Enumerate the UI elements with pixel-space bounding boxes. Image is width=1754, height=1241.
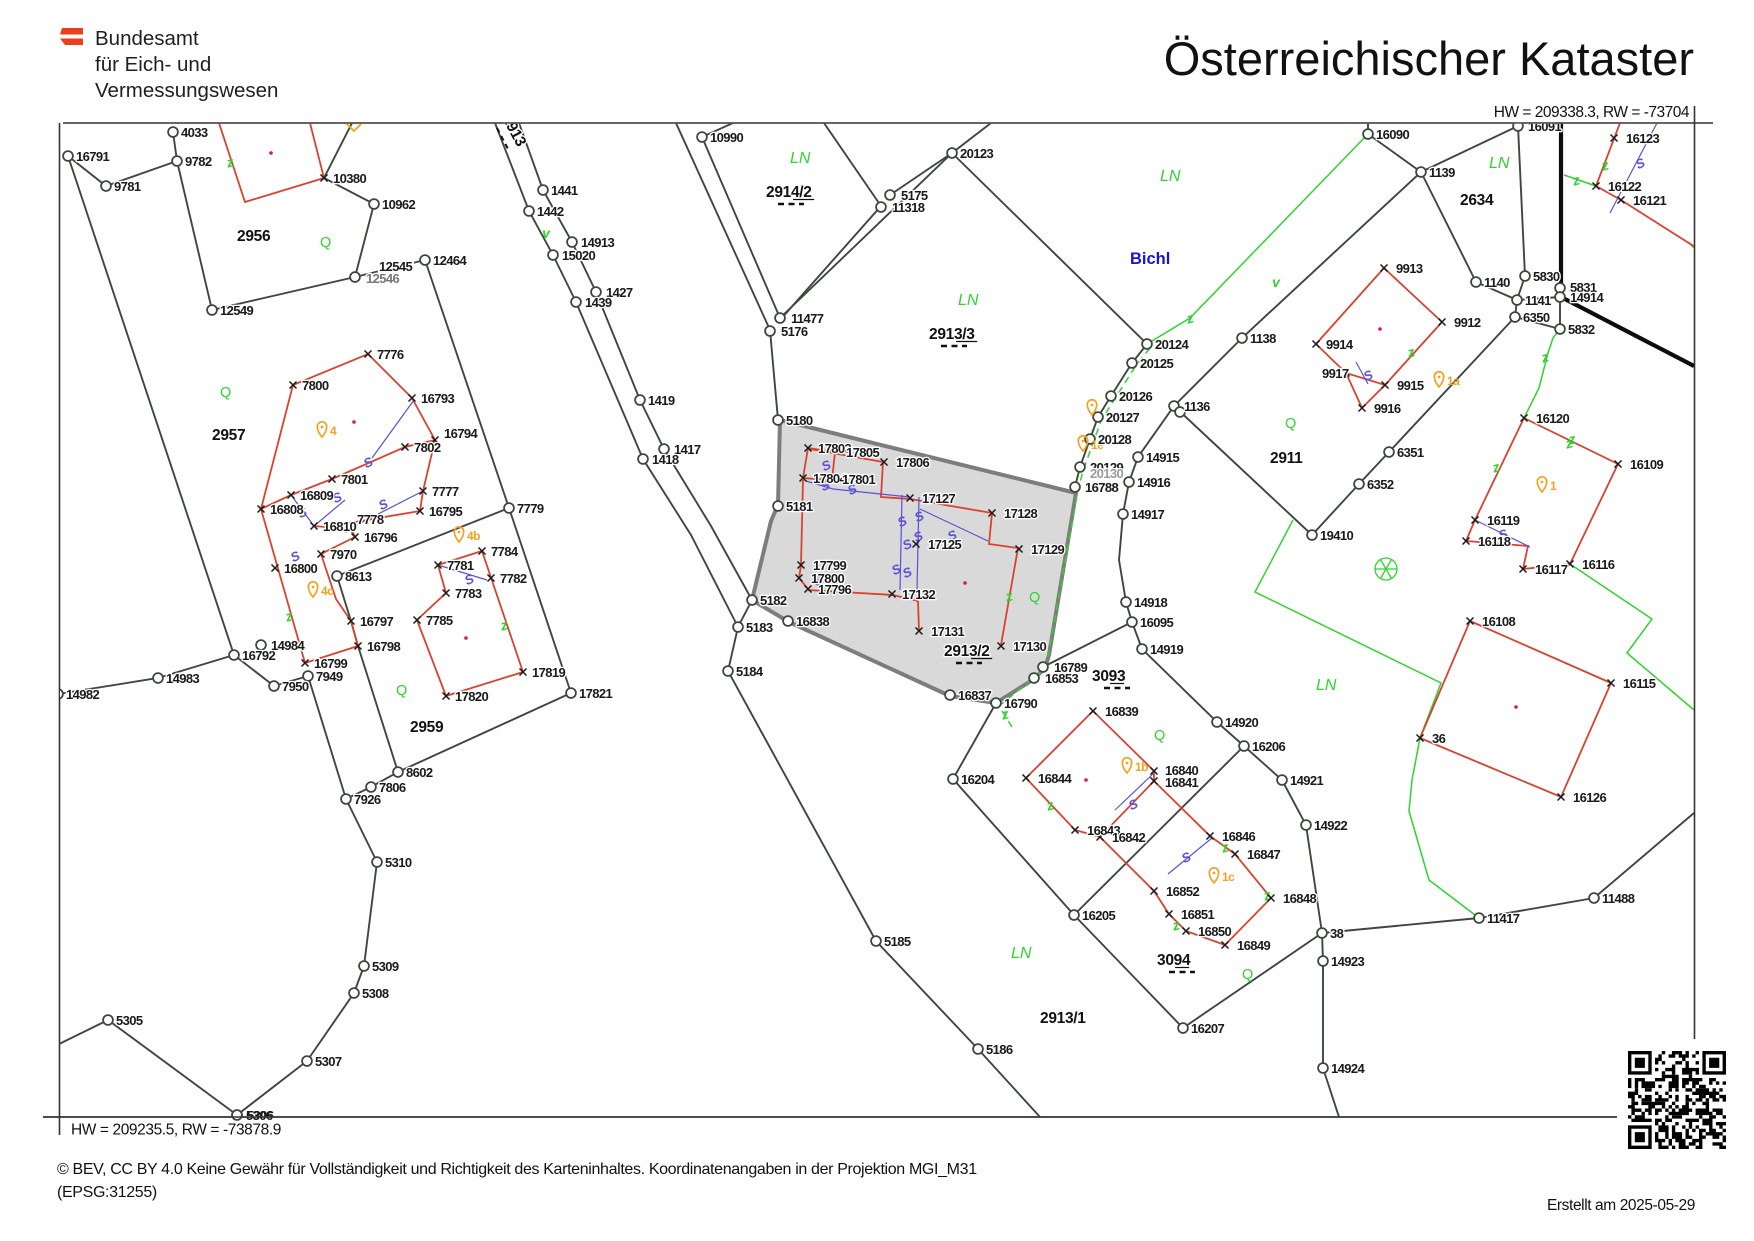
svg-text:5305: 5305 [116,1013,143,1028]
svg-text:20127: 20127 [1106,410,1140,425]
svg-text:2913/3: 2913/3 [929,326,975,343]
svg-text:1419: 1419 [648,393,675,408]
svg-text:1141: 1141 [1525,293,1551,308]
svg-text:3093: 3093 [1092,668,1126,685]
svg-text:11417: 11417 [1487,911,1520,926]
svg-text:2634: 2634 [1460,192,1494,209]
svg-text:17127: 17127 [922,491,956,506]
svg-text:2959: 2959 [410,719,444,736]
svg-text:1c: 1c [1222,870,1235,884]
svg-text:16844: 16844 [1038,771,1073,786]
svg-text:5309: 5309 [372,959,399,974]
svg-text:5185: 5185 [884,934,911,949]
svg-text:17131: 17131 [931,624,965,639]
svg-text:1139: 1139 [1429,165,1455,180]
svg-text:16849: 16849 [1237,938,1271,953]
svg-text:6352: 6352 [1367,477,1394,492]
svg-text:16095: 16095 [1140,615,1174,630]
svg-text:1441: 1441 [551,183,578,198]
svg-text:16796: 16796 [364,530,398,545]
svg-text:14918: 14918 [1134,595,1168,610]
svg-text:5184: 5184 [736,664,764,679]
svg-text:Q: Q [320,235,331,251]
svg-text:17125: 17125 [928,537,962,552]
svg-text:16795: 16795 [429,504,463,519]
svg-text:17805: 17805 [846,445,880,460]
svg-text:11488: 11488 [1602,891,1635,906]
svg-text:14917: 14917 [1131,507,1165,522]
svg-text:7776: 7776 [377,347,404,362]
svg-text:10962: 10962 [382,197,416,212]
svg-text:5176: 5176 [781,324,808,339]
svg-text:Österreichischer Kataster: Österreichischer Kataster [1164,32,1694,85]
svg-text:16798: 16798 [367,639,401,654]
svg-text:9917: 9917 [1322,366,1349,381]
svg-text:1136: 1136 [1184,399,1210,414]
svg-text:2957: 2957 [212,427,245,444]
svg-text:16799: 16799 [314,656,348,671]
svg-text:16851: 16851 [1181,907,1215,922]
svg-text:1442: 1442 [537,204,564,219]
svg-text:7801: 7801 [341,472,368,487]
svg-text:16116: 16116 [1582,557,1615,572]
svg-text:7777: 7777 [432,484,459,499]
svg-text:7778: 7778 [357,512,384,527]
svg-text:20123: 20123 [960,146,994,161]
svg-text:16793: 16793 [421,391,455,406]
svg-text:7949: 7949 [316,669,343,684]
svg-text:16126: 16126 [1573,790,1607,805]
svg-text:14982: 14982 [66,687,100,702]
svg-text:9914: 9914 [1326,337,1354,352]
svg-text:Erstellt am 2025-05-29: Erstellt am 2025-05-29 [1547,1197,1695,1214]
svg-text:4b: 4b [467,529,480,543]
svg-text:Q: Q [1285,416,1296,432]
svg-text:Vermessungswesen: Vermessungswesen [95,79,278,102]
svg-text:1418: 1418 [652,452,679,467]
svg-text:Q: Q [220,385,231,401]
svg-text:5308: 5308 [362,986,389,1001]
svg-text:16117: 16117 [1535,562,1568,577]
svg-text:2956: 2956 [237,228,271,245]
svg-text:16204: 16204 [961,772,996,787]
svg-text:14914: 14914 [1570,290,1605,305]
svg-text:14924: 14924 [1331,1061,1366,1076]
svg-text:7783: 7783 [455,586,482,601]
svg-text:14916: 14916 [1137,475,1171,490]
svg-text:36: 36 [1432,731,1446,746]
svg-text:16206: 16206 [1252,739,1286,754]
svg-text:LN: LN [790,150,811,167]
svg-text:Bundesamt: Bundesamt [95,27,199,50]
svg-text:1439: 1439 [585,295,612,310]
svg-text:5310: 5310 [385,855,412,870]
svg-text:7806: 7806 [379,780,406,795]
svg-text:LN: LN [1011,945,1032,962]
svg-text:1138: 1138 [1250,331,1276,346]
svg-text:(EPSG:31255): (EPSG:31255) [57,1184,157,1201]
svg-text:14915: 14915 [1146,450,1180,465]
svg-text:7926: 7926 [354,792,381,807]
svg-text:19410: 19410 [1320,528,1354,543]
svg-text:2914/2: 2914/2 [766,184,812,201]
svg-text:16788: 16788 [1085,480,1119,495]
svg-text:5832: 5832 [1568,322,1595,337]
svg-text:5180: 5180 [786,413,813,428]
svg-text:9913: 9913 [1396,261,1423,276]
svg-text:16109: 16109 [1630,457,1664,472]
svg-text:14919: 14919 [1150,642,1184,657]
svg-text:7784: 7784 [491,544,519,559]
svg-text:16090: 16090 [1376,127,1410,142]
svg-text:1a: 1a [1447,374,1460,388]
svg-text:16853: 16853 [1045,671,1079,686]
svg-text:7970: 7970 [330,547,357,562]
svg-text:17796: 17796 [818,582,852,597]
svg-text:Q: Q [396,683,407,699]
svg-text:38: 38 [1330,926,1344,941]
svg-text:16119: 16119 [1487,513,1520,528]
svg-text:7802: 7802 [414,440,441,455]
svg-text:für Eich- und: für Eich- und [95,53,211,76]
svg-text:20130: 20130 [1090,466,1124,481]
svg-text:Q: Q [1154,728,1165,744]
svg-text:16841: 16841 [1165,775,1199,790]
svg-text:6351: 6351 [1397,445,1424,460]
svg-text:5186: 5186 [986,1042,1013,1057]
svg-text:7800: 7800 [302,378,329,393]
svg-text:14984: 14984 [271,638,306,653]
svg-text:20125: 20125 [1140,356,1174,371]
svg-text:14923: 14923 [1331,954,1365,969]
svg-text:7785: 7785 [426,613,453,628]
svg-text:HW = 209338.3, RW = -73704: HW = 209338.3, RW = -73704 [1494,104,1690,121]
svg-text:16847: 16847 [1247,847,1281,862]
svg-text:16837: 16837 [958,688,992,703]
svg-text:5830: 5830 [1533,269,1560,284]
svg-text:9912: 9912 [1454,315,1481,330]
svg-text:16839: 16839 [1105,704,1139,719]
svg-text:17129: 17129 [1031,542,1065,557]
svg-text:6350: 6350 [1523,310,1550,325]
svg-text:2913/1: 2913/1 [1040,1010,1086,1027]
svg-text:LN: LN [1160,168,1181,185]
svg-text:10990: 10990 [710,130,744,145]
svg-text:16846: 16846 [1222,829,1256,844]
svg-text:HW = 209235.5, RW = -73878.9: HW = 209235.5, RW = -73878.9 [71,1122,281,1139]
svg-text:9916: 9916 [1374,401,1401,416]
svg-text:16797: 16797 [360,614,394,629]
svg-text:16118: 16118 [1478,534,1511,549]
svg-text:12549: 12549 [220,303,254,318]
svg-text:17132: 17132 [902,587,936,602]
svg-text:v: v [1272,274,1281,290]
svg-text:16122: 16122 [1608,179,1642,194]
svg-text:16848: 16848 [1283,891,1317,906]
svg-text:2913/2: 2913/2 [944,643,990,660]
svg-text:5307: 5307 [315,1054,342,1069]
svg-text:16115: 16115 [1623,676,1656,691]
svg-text:10380: 10380 [333,171,367,186]
svg-text:4: 4 [330,424,337,438]
svg-text:LN: LN [1316,677,1337,694]
svg-text:16850: 16850 [1198,924,1232,939]
svg-text:17806: 17806 [896,455,930,470]
svg-text:16123: 16123 [1626,131,1660,146]
svg-text:12464: 12464 [433,253,468,268]
svg-text:16205: 16205 [1082,908,1116,923]
svg-text:16120: 16120 [1536,411,1570,426]
svg-text:1140: 1140 [1484,275,1510,290]
svg-text:4c: 4c [321,584,334,598]
svg-text:17801: 17801 [842,472,876,487]
svg-text:LN: LN [958,292,979,309]
svg-text:v: v [542,225,551,241]
svg-text:12545: 12545 [379,259,413,274]
svg-text:8613: 8613 [345,569,372,584]
svg-text:16207: 16207 [1191,1021,1225,1036]
svg-text:Q: Q [1242,967,1253,983]
svg-text:14920: 14920 [1225,715,1259,730]
svg-text:4033: 4033 [181,125,208,140]
svg-text:7782: 7782 [500,571,527,586]
svg-text:16121: 16121 [1633,193,1667,208]
svg-text:16838: 16838 [796,614,830,629]
svg-text:16108: 16108 [1482,614,1516,629]
svg-text:9781: 9781 [114,179,141,194]
svg-text:15020: 15020 [562,248,596,263]
svg-text:20124: 20124 [1155,337,1190,352]
svg-text:17821: 17821 [579,686,613,701]
svg-text:5182: 5182 [760,593,787,608]
svg-text:9915: 9915 [1397,378,1424,393]
svg-text:5183: 5183 [746,620,773,635]
svg-text:17130: 17130 [1013,639,1047,654]
svg-text:20128: 20128 [1098,432,1132,447]
svg-text:8602: 8602 [406,765,433,780]
svg-text:17819: 17819 [532,665,566,680]
svg-text:11318: 11318 [892,200,925,215]
svg-text:1b: 1b [1135,760,1148,774]
svg-text:7781: 7781 [447,558,474,573]
svg-text:16800: 16800 [284,561,318,576]
svg-text:3094: 3094 [1157,952,1191,969]
svg-text:Q: Q [1029,590,1040,606]
svg-text:5181: 5181 [786,499,813,514]
svg-text:14921: 14921 [1290,773,1324,788]
svg-text:LN: LN [1489,155,1510,172]
svg-text:© BEV, CC BY 4.0 Keine Gewähr: © BEV, CC BY 4.0 Keine Gewähr für Vollst… [57,1161,977,1178]
svg-text:7779: 7779 [517,501,544,516]
svg-text:9782: 9782 [185,154,212,169]
svg-text:16794: 16794 [444,426,479,441]
svg-text:14922: 14922 [1314,818,1348,833]
svg-text:1: 1 [1550,479,1557,493]
svg-text:16790: 16790 [1004,696,1038,711]
svg-text:20126: 20126 [1119,389,1153,404]
svg-text:2911: 2911 [1270,450,1303,467]
svg-text:16808: 16808 [270,502,304,517]
svg-text:16791: 16791 [76,149,110,164]
svg-text:16842: 16842 [1112,830,1146,845]
svg-text:Bichl: Bichl [1130,250,1170,268]
svg-text:7950: 7950 [282,679,309,694]
svg-text:16810: 16810 [323,519,357,534]
svg-text:17820: 17820 [455,689,489,704]
svg-text:17128: 17128 [1004,506,1038,521]
svg-text:16852: 16852 [1166,884,1200,899]
svg-text:14983: 14983 [166,671,200,686]
svg-text:16809: 16809 [300,488,334,503]
